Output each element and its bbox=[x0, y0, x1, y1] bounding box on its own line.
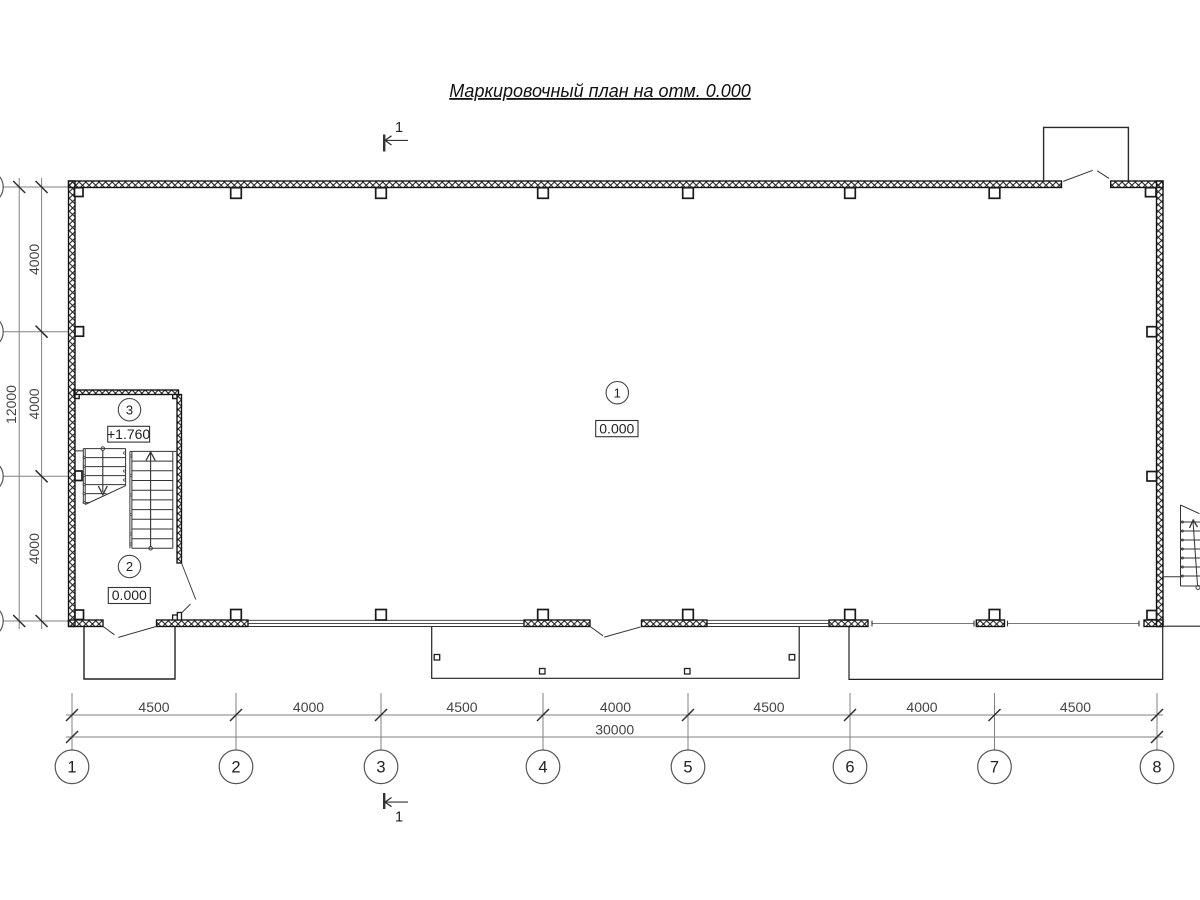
svg-text:4500: 4500 bbox=[446, 699, 477, 715]
svg-text:6: 6 bbox=[845, 759, 854, 777]
svg-text:4000: 4000 bbox=[26, 244, 42, 275]
svg-text:1: 1 bbox=[395, 810, 403, 826]
svg-text:1: 1 bbox=[395, 120, 403, 136]
svg-text:Маркировочный план на отм. 0.0: Маркировочный план на отм. 0.000 bbox=[449, 81, 751, 101]
svg-text:4500: 4500 bbox=[1060, 699, 1091, 715]
svg-text:4500: 4500 bbox=[753, 699, 784, 715]
svg-text:4000: 4000 bbox=[906, 699, 937, 715]
svg-text:8: 8 bbox=[1152, 759, 1161, 777]
svg-text:1: 1 bbox=[67, 759, 76, 777]
svg-text:5: 5 bbox=[683, 759, 692, 777]
svg-text:3: 3 bbox=[376, 759, 385, 777]
svg-text:4: 4 bbox=[538, 759, 547, 777]
svg-text:3: 3 bbox=[126, 402, 133, 417]
svg-text:30000: 30000 bbox=[595, 722, 634, 738]
svg-text:0.000: 0.000 bbox=[599, 420, 634, 436]
svg-text:4000: 4000 bbox=[600, 699, 631, 715]
svg-text:0.000: 0.000 bbox=[112, 587, 147, 603]
svg-text:4000: 4000 bbox=[26, 533, 42, 564]
svg-text:4500: 4500 bbox=[138, 699, 169, 715]
svg-text:2: 2 bbox=[231, 759, 240, 777]
svg-text:+1.760: +1.760 bbox=[107, 426, 150, 442]
svg-text:4000: 4000 bbox=[26, 388, 42, 419]
svg-text:4000: 4000 bbox=[293, 699, 324, 715]
svg-text:2: 2 bbox=[126, 559, 133, 574]
svg-text:12000: 12000 bbox=[3, 385, 19, 424]
svg-text:7: 7 bbox=[990, 759, 999, 777]
svg-text:1: 1 bbox=[614, 385, 621, 400]
